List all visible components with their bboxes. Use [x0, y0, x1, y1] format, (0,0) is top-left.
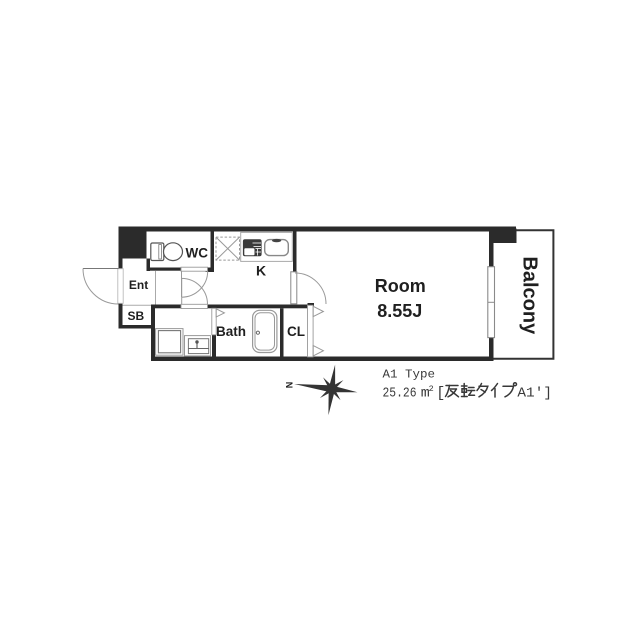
svg-text:2: 2	[429, 384, 434, 394]
svg-text:Room: Room	[375, 276, 426, 296]
svg-text:WC: WC	[186, 245, 209, 260]
svg-text:Bath: Bath	[216, 324, 246, 339]
svg-text:25.26: 25.26	[383, 386, 417, 402]
svg-text:Balcony: Balcony	[519, 256, 541, 335]
svg-text:Ent: Ent	[129, 278, 148, 292]
svg-text:K: K	[256, 263, 266, 279]
svg-text:A1']: A1']	[517, 386, 552, 402]
svg-text:SB: SB	[127, 309, 144, 323]
svg-text:N: N	[284, 382, 294, 389]
svg-text:CL: CL	[287, 324, 305, 339]
svg-text:A1 Type: A1 Type	[383, 368, 436, 382]
svg-text:8.55J: 8.55J	[377, 301, 422, 321]
svg-text:[: [	[436, 385, 445, 402]
